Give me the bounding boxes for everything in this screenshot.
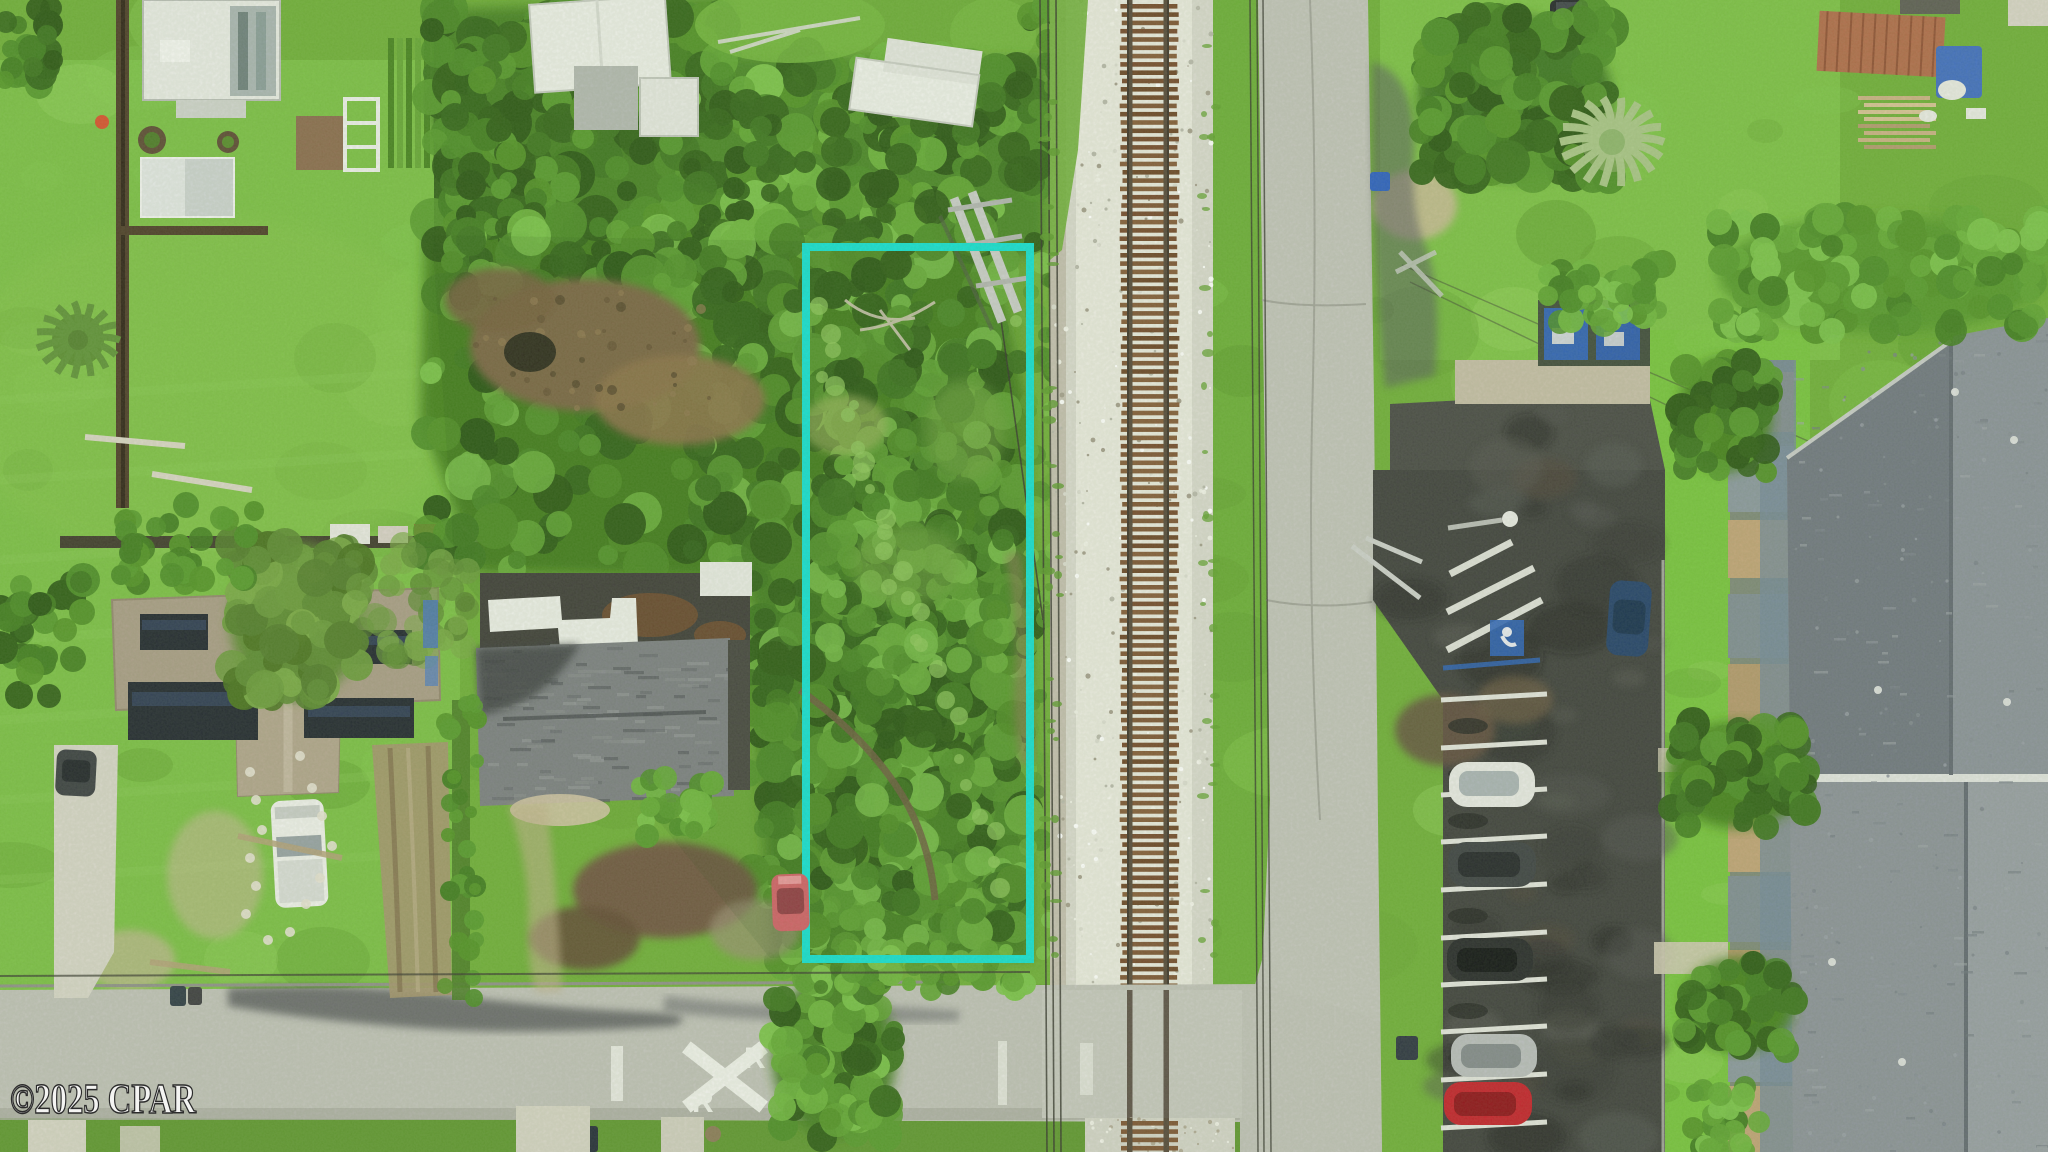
svg-text:©2025 CPAR: ©2025 CPAR bbox=[10, 1077, 197, 1123]
